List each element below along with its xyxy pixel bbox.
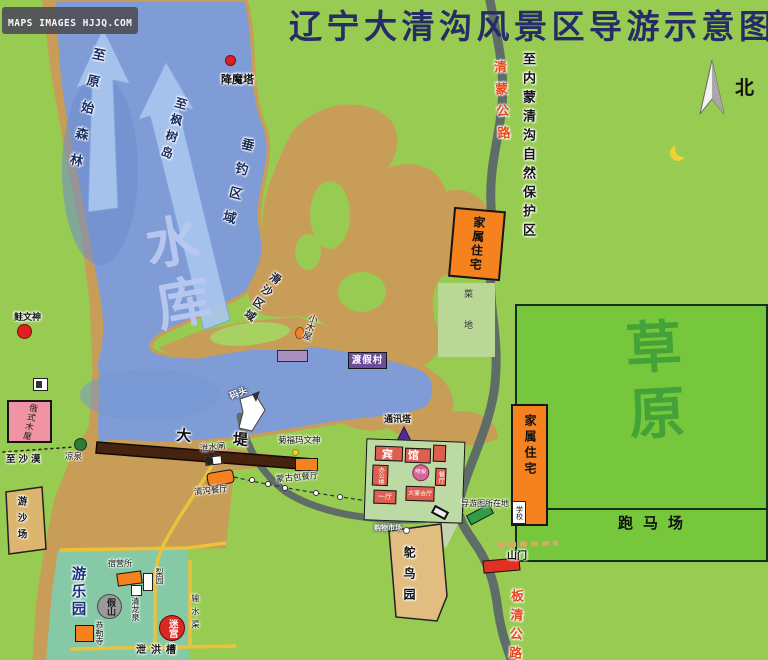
xiangmo-tower-dot [225, 55, 236, 66]
to-desert-label: 至沙漠 [6, 455, 44, 465]
camp-office-label: 宿营所 [108, 560, 132, 568]
fish-totem-label: 鲑文神 [14, 314, 41, 323]
russian-cabin-label: 俄式木屋 [21, 402, 37, 441]
path-node [338, 495, 343, 500]
hotel-office-label: 办公楼 [377, 466, 384, 484]
qinglong-spring-label: 清龙泉 [131, 597, 139, 621]
ostrich-park-area [389, 524, 447, 621]
family-residence-east-label: 家属住宅 [524, 414, 536, 478]
sluice-gate-glyph [206, 457, 214, 465]
shopping-market-label: 购物市场 [374, 525, 402, 532]
resort-village-box: 渡假村 [348, 352, 387, 369]
watermark-text: MAPS IMAGES HJJQ.COM [8, 18, 132, 29]
hotel-building [433, 445, 447, 462]
green-patch [338, 272, 386, 312]
hotel-hall-one-box: 一厅 [373, 490, 396, 505]
shopping-market-dot [403, 527, 410, 534]
school-box: 学校 [512, 501, 526, 524]
xiangmo-tower-label: 降魔塔 [221, 74, 254, 85]
small-building-icon [131, 585, 142, 596]
vegetable-field-label: 菜地 [462, 289, 471, 351]
fish-totem-dot [17, 324, 32, 339]
pear-garden-icon [143, 573, 153, 591]
shed-box [277, 350, 308, 362]
water-channel-label: 输水渠 [191, 594, 199, 633]
rockery-hill-label: 假山 [105, 598, 114, 616]
cool-spring-label: 凉泉 [65, 453, 82, 462]
hotel-dining-box: 餐厅 [435, 468, 447, 486]
lake-deep-patch [80, 369, 220, 421]
sluice-gate-icon [205, 455, 223, 466]
trail-to-desert [3, 447, 74, 452]
family-residence-north-box: 家属住宅 [448, 207, 506, 281]
horse-track-label: 跑马场 [618, 516, 693, 531]
map-canvas: MAPS IMAGES HJJQ.COM 家属住宅 菜地 渡假村 俄式木屋 宾馆… [0, 0, 768, 660]
banqing-highway-label: 板清公路 [507, 589, 523, 660]
to-reserve-label: 至内蒙清沟自然保护区 [521, 52, 534, 242]
mawenshen-dot [292, 449, 299, 456]
mawenshen-label: 菊福玛文神 [278, 437, 321, 446]
vegetable-field-box: 菜地 [438, 283, 495, 357]
watermark-badge: MAPS IMAGES HJJQ.COM [2, 7, 138, 34]
russian-cabin-box: 俄式木屋 [7, 400, 52, 443]
flood-channel-label: 泄洪槽 [136, 646, 181, 656]
guide-map-location-label: 导游图所在地 [461, 500, 509, 508]
hotel-banquet-label: 大宴会厅 [408, 490, 432, 497]
green-patch [295, 234, 321, 270]
map-title: 辽宁大清沟风景区导游示意图 [289, 10, 768, 43]
hotel-office-box: 办公楼 [372, 465, 389, 487]
cool-spring-dot [74, 438, 87, 451]
mountain-gate-label: 山门 [507, 552, 527, 562]
family-residence-north-label: 家属住宅 [469, 216, 486, 273]
hotel-name-label: 宾馆 [382, 449, 434, 462]
hotel-dining-label: 餐厅 [437, 470, 444, 483]
maze-circle: 迷宫 [159, 615, 185, 641]
grassland-label: 草原 [619, 317, 682, 452]
hotel-complex: 宾馆 办公楼 喷泉 餐厅 一厅 大宴会厅 [364, 438, 466, 523]
gonglei-temple-box [75, 625, 94, 642]
pear-garden-label: 梨园 [155, 568, 163, 584]
hotel-fountain: 喷泉 [412, 464, 430, 482]
sand-playground-label: 游沙场 [16, 496, 26, 546]
path-node [314, 491, 319, 496]
path-node [266, 482, 271, 487]
comm-tower-label: 通讯塔 [384, 416, 411, 425]
maze-label: 迷宫 [167, 619, 177, 638]
toilet-icon-glyph [36, 381, 42, 388]
toilet-icon [33, 378, 48, 391]
hotel-fountain-label: 喷泉 [415, 470, 426, 476]
ostrich-park-label: 鸵鸟园 [403, 546, 415, 609]
hotel-banquet-box: 大宴会厅 [405, 486, 435, 502]
yurt-restaurant-box [295, 458, 318, 471]
compass-north-label: 北 [735, 79, 754, 98]
moon-mask [675, 141, 691, 157]
path-node [283, 486, 288, 491]
school-label: 学校 [516, 506, 523, 520]
hotel-hall-one-label: 一厅 [378, 493, 392, 500]
resort-village-label: 渡假村 [352, 356, 384, 366]
rockery-hill-circle: 假山 [97, 594, 122, 619]
gonglei-temple-label: 恭勒寺 [95, 621, 103, 645]
amusement-park-label: 游乐园 [70, 566, 85, 619]
path-node [250, 478, 255, 483]
